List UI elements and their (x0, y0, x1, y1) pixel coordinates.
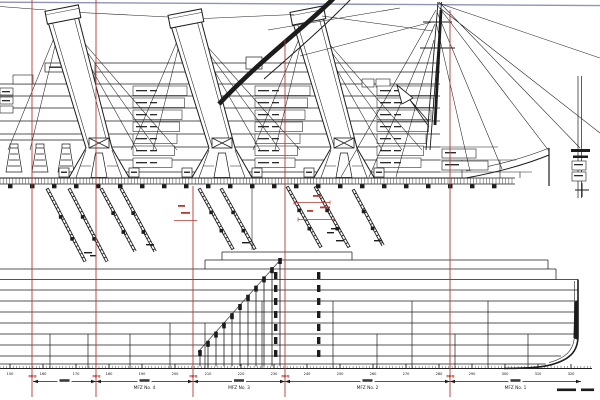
bulkhead-lines (50, 301, 528, 368)
mark (111, 211, 115, 215)
mark (70, 237, 74, 241)
mark (294, 184, 299, 188)
micro-label (574, 164, 583, 165)
mark (184, 184, 189, 188)
deck-step-risers (205, 252, 556, 280)
deck-railing-band (0, 178, 515, 188)
line (222, 188, 256, 249)
mark (297, 209, 301, 213)
mark (136, 138, 147, 139)
mark (270, 267, 274, 273)
mfb-tag: MFB (92, 375, 101, 379)
bracket-arrow (445, 380, 450, 384)
chute-rungs (47, 188, 85, 261)
bracket-arrow (91, 380, 96, 384)
label: MFZ No. 3 (228, 385, 250, 391)
mark (274, 272, 277, 279)
lower-bow-stem-inner (549, 281, 575, 363)
micro-label (2, 100, 10, 101)
general-arrangement-svg: 1501601701801902002102202302402502602702… (0, 0, 600, 400)
mfb-tag: MFB (28, 375, 37, 379)
mark (274, 337, 277, 344)
mark (394, 150, 401, 151)
mark (118, 184, 123, 188)
funnels (8, 5, 422, 178)
mark (262, 276, 266, 282)
stem-mark (571, 149, 590, 152)
stem-shading (574, 300, 579, 340)
mark (230, 313, 234, 319)
deckhouse-box (362, 79, 374, 87)
mark (150, 150, 157, 151)
anchor-cross-icon (575, 183, 589, 197)
mark (220, 229, 224, 233)
mfb-tag: MFB (281, 375, 290, 379)
mark (404, 184, 409, 188)
label: 240 (304, 372, 312, 376)
mark (317, 337, 320, 344)
mark (274, 298, 277, 305)
stem-box (572, 161, 586, 170)
mark (61, 172, 67, 174)
mark (136, 90, 147, 91)
mark (96, 184, 101, 188)
ship-profile-drawing: 1501601701801902002102202302402502602702… (0, 0, 600, 400)
uptake-chutes (46, 186, 384, 262)
line (122, 188, 156, 251)
line (220, 189, 254, 250)
mfb-tag: MFB (446, 375, 455, 379)
midband-annotations (84, 186, 382, 256)
label: 190 (139, 372, 147, 376)
mark (136, 126, 147, 127)
mark (222, 322, 226, 328)
mark (234, 379, 244, 382)
mark (360, 184, 365, 188)
chute-rungs (353, 189, 383, 245)
mark (492, 184, 497, 188)
mark (258, 102, 269, 103)
mark (136, 114, 147, 115)
bracket-arrow (33, 380, 38, 384)
top-reference-line (0, 2, 600, 5)
label: 210 (205, 372, 213, 376)
forecastle-box (442, 149, 476, 158)
line (100, 189, 134, 252)
mark (317, 298, 320, 305)
line (352, 190, 382, 246)
mark (136, 102, 147, 103)
mark (209, 211, 213, 215)
mark (140, 184, 145, 188)
line (200, 188, 234, 249)
label: 230 (271, 372, 279, 376)
mark (122, 230, 126, 234)
mark (317, 285, 320, 292)
mark (394, 102, 401, 103)
label: 160 (40, 372, 48, 376)
mark (511, 379, 521, 382)
scale-bar-mark (557, 389, 576, 392)
mark (394, 138, 401, 139)
mark (92, 237, 96, 241)
label: 150 (7, 372, 15, 376)
label: 310 (535, 372, 543, 376)
mark (150, 126, 157, 127)
mark (214, 332, 218, 338)
deckhouse-box (13, 75, 33, 84)
mfb-tag: MFB (189, 375, 198, 379)
label: 220 (238, 372, 246, 376)
mark (338, 184, 343, 188)
mark (380, 150, 391, 151)
mark (317, 311, 320, 318)
line (70, 188, 108, 261)
stem-box (572, 172, 586, 181)
mark (131, 211, 135, 215)
chute-rungs (69, 188, 107, 261)
mark (136, 162, 147, 163)
lower-deck-lines (0, 252, 578, 364)
bracket-arrow (193, 380, 198, 384)
mark (376, 172, 382, 174)
lower-bow-stem (504, 280, 578, 369)
mark (150, 114, 157, 115)
mark (394, 126, 401, 127)
label: 250 (337, 372, 345, 376)
stem-mark (573, 156, 588, 159)
label: MFZ No. 2 (357, 385, 379, 391)
micro-label (574, 175, 583, 176)
label: MFZ No. 1 (505, 385, 527, 391)
mark (254, 172, 260, 174)
mark (242, 229, 246, 233)
mark (470, 184, 475, 188)
red-micro-labels (178, 195, 330, 214)
mark (136, 150, 147, 151)
mark (258, 150, 269, 151)
mark (325, 209, 329, 213)
mark (362, 210, 366, 214)
chute-rungs (121, 188, 155, 251)
mark (274, 350, 277, 357)
mark (8, 184, 13, 188)
mark (231, 211, 235, 215)
label: 180 (106, 372, 114, 376)
mark (272, 114, 279, 115)
mark (258, 90, 269, 91)
mark (140, 379, 150, 382)
label: MFZ No. 4 (134, 385, 156, 391)
mark (382, 184, 387, 188)
mark (81, 215, 85, 219)
line (46, 189, 84, 262)
label: 290 (469, 372, 477, 376)
room-box (0, 106, 13, 113)
scale-bar-mark (581, 389, 594, 392)
mark (371, 226, 375, 230)
line (354, 189, 384, 245)
line (316, 186, 350, 247)
mark (238, 304, 242, 310)
chute-rungs (101, 188, 135, 251)
label: 200 (172, 372, 180, 376)
label: 170 (73, 372, 81, 376)
mark (317, 350, 320, 357)
mark (274, 324, 277, 331)
mark (380, 90, 391, 91)
bracket-arrow (280, 380, 285, 384)
mark (272, 184, 277, 188)
bracket-arrow (188, 380, 193, 384)
line (198, 189, 232, 250)
bracket-arrow (576, 380, 581, 384)
mark (258, 138, 269, 139)
micro-label (49, 67, 61, 68)
mark (272, 126, 279, 127)
mark (380, 102, 391, 103)
line (48, 188, 86, 261)
bracket-arrow (285, 380, 290, 384)
mark (426, 184, 431, 188)
mark (206, 184, 211, 188)
mark (272, 162, 279, 163)
mark (306, 172, 312, 174)
label: 300 (502, 372, 510, 376)
mark (258, 162, 269, 163)
mark (59, 215, 63, 219)
line (68, 189, 106, 262)
mark (272, 150, 279, 151)
mark (258, 126, 269, 127)
forecastle-box (442, 161, 488, 170)
mark (380, 162, 391, 163)
mark (142, 230, 146, 234)
funnel-body (293, 17, 374, 178)
funnel-body (48, 16, 129, 178)
mark (228, 184, 233, 188)
mark (52, 184, 57, 188)
mark (74, 184, 79, 188)
mark (317, 324, 320, 331)
mark (60, 379, 70, 382)
bracket-arrow (96, 380, 101, 384)
micro-label (445, 152, 456, 153)
micro-label (2, 91, 10, 92)
line (120, 189, 154, 252)
mark (162, 184, 167, 188)
lower-profile (0, 252, 594, 391)
frame-ruler: 1501601701801902002102202302402502602702… (0, 364, 591, 376)
label: 320 (568, 372, 576, 376)
label: 260 (370, 372, 378, 376)
mark (274, 311, 277, 318)
mark (278, 258, 282, 264)
mark (206, 341, 210, 347)
mark (394, 114, 401, 115)
mark (254, 286, 258, 292)
micro-label (445, 164, 459, 165)
mark (150, 162, 157, 163)
mark (184, 172, 190, 174)
mark (308, 227, 312, 231)
mark (274, 285, 277, 292)
mark (131, 172, 137, 174)
fire-zone-brackets: MFZ No. 4MFZ No. 3MFZ No. 2MFZ No. 1MFBM… (28, 375, 581, 391)
bracket-arrow (450, 380, 455, 384)
mark (198, 350, 202, 356)
fire-zone-lines (32, 0, 450, 397)
mark (317, 272, 320, 279)
line (102, 188, 136, 251)
label: 270 (403, 372, 411, 376)
mark (363, 379, 373, 382)
mark (246, 295, 250, 301)
mark (380, 114, 391, 115)
label: 280 (436, 372, 444, 376)
